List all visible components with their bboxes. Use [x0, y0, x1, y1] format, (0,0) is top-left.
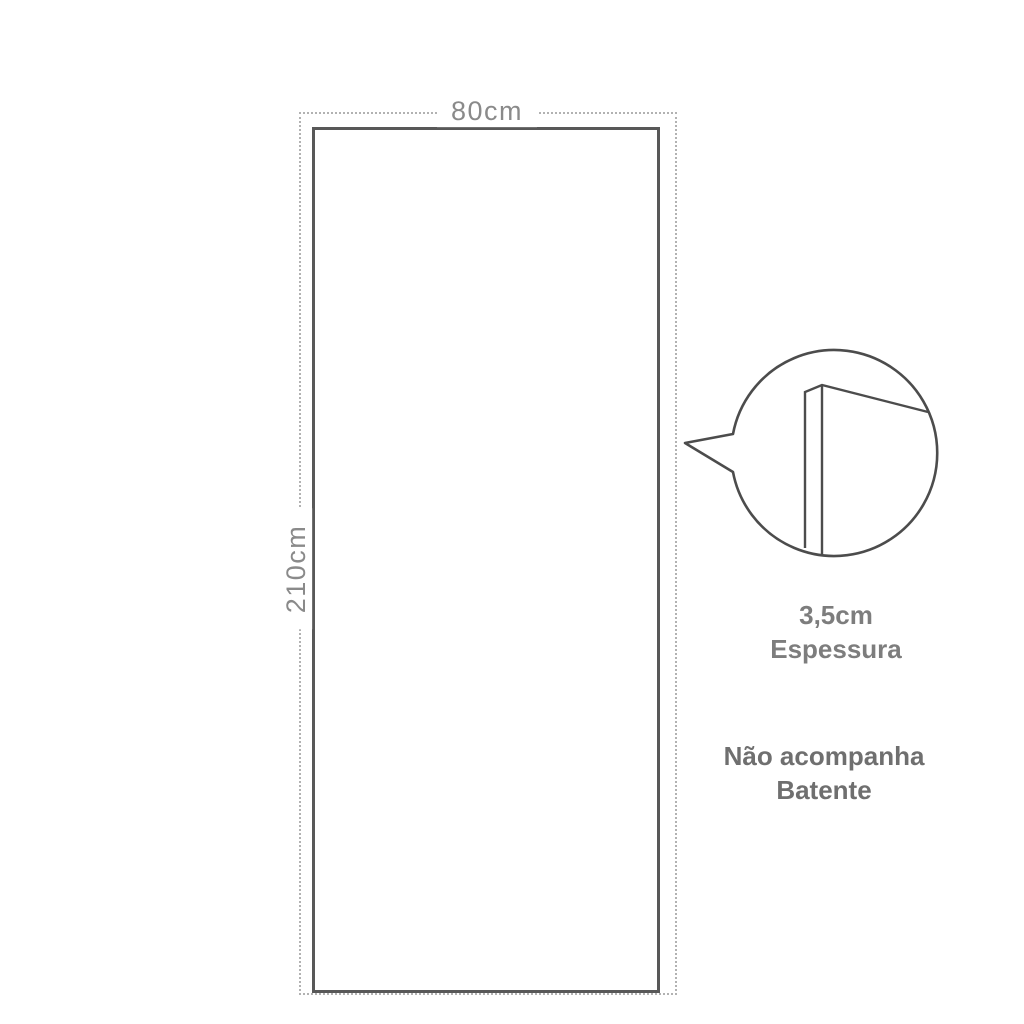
- callout-bubble: [685, 350, 937, 556]
- thickness-value: 3,5cm: [770, 598, 902, 632]
- thickness-annotation: 3,5cm Espessura: [770, 598, 902, 666]
- frame-note: Não acompanha Batente: [724, 739, 925, 807]
- frame-note-line1: Não acompanha: [724, 739, 925, 773]
- frame-note-line2: Batente: [724, 773, 925, 807]
- door-dimension-diagram: 80cm 210cm 3,5cm Espessura Não acompanha…: [0, 0, 1024, 1024]
- thickness-label: Espessura: [770, 632, 902, 666]
- thickness-callout-drawing: [0, 0, 1024, 1024]
